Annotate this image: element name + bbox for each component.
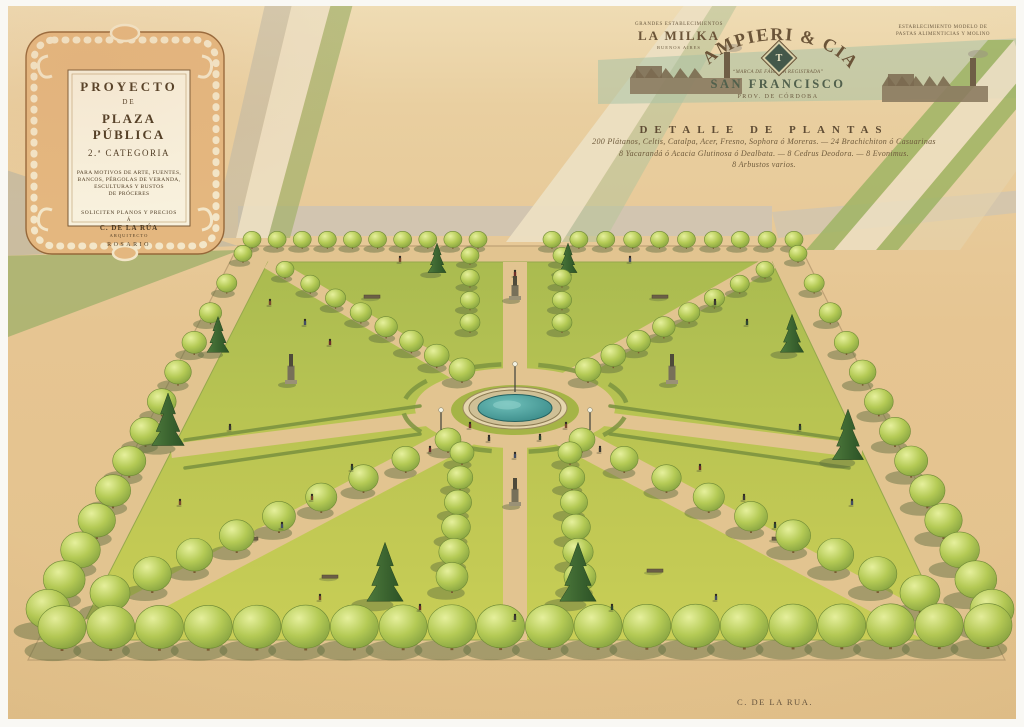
tree-crown <box>375 317 398 337</box>
lamp-globe <box>588 408 593 413</box>
person-body <box>419 606 421 610</box>
person-head <box>746 319 748 321</box>
tree-crown <box>436 562 468 591</box>
person-body <box>514 272 516 276</box>
tree-crown <box>234 245 252 261</box>
tree-crown <box>293 231 311 247</box>
body-line: DE PRÓCERES <box>77 191 181 198</box>
tree-crown <box>165 360 192 384</box>
tree-crown <box>570 231 588 247</box>
photograph-frame: PROYECTO DE PLAZA PÚBLICA 2.ª CATEGORIA … <box>0 0 1024 727</box>
person-body <box>269 301 271 305</box>
person-body <box>799 426 801 430</box>
person-body <box>599 448 601 452</box>
monument-plinth <box>669 366 676 380</box>
bench <box>361 295 380 301</box>
tree-crown <box>756 261 774 277</box>
tree-crown <box>330 605 378 648</box>
bench-seat <box>364 295 380 298</box>
person-body <box>746 321 748 325</box>
tree-crown <box>450 442 474 464</box>
tree-crown <box>268 231 286 247</box>
plant-detail-line: 8 Arbustos varios. <box>520 159 1008 171</box>
person-shadow <box>278 528 283 530</box>
person-shadow <box>316 600 321 602</box>
person-shadow <box>712 600 717 602</box>
tree-crown <box>678 303 699 322</box>
bench-seat <box>647 569 663 572</box>
tree-crown <box>789 245 807 261</box>
tree-crown <box>461 269 480 286</box>
tree-crown <box>834 331 859 353</box>
tree-crown <box>392 446 420 471</box>
bench <box>319 575 338 581</box>
person-head <box>743 494 745 496</box>
monument-statue <box>670 354 674 366</box>
tree-crown <box>469 231 487 247</box>
tree-crown <box>880 417 911 445</box>
person-shadow <box>348 470 353 472</box>
tree-crown <box>558 442 582 464</box>
tree-crown <box>867 604 915 647</box>
person-body <box>514 454 516 458</box>
tree-crown <box>394 231 412 247</box>
tree-crown <box>818 604 866 647</box>
cartouche-body: PARA MOTIVOS DE ARTE, FUENTES, BANCOS, P… <box>77 170 181 198</box>
person-body <box>329 341 331 345</box>
tree-crown <box>325 289 345 307</box>
tree-crown <box>776 520 811 551</box>
person-shadow <box>176 505 181 507</box>
cartouche-footer: SOLICITEN PLANOS Y PRECIOS Á C. DE LA RÚ… <box>81 210 177 249</box>
person-head <box>329 339 331 341</box>
person-head <box>229 424 231 426</box>
lamp-globe <box>439 408 444 413</box>
tree-crown <box>785 231 803 247</box>
person-shadow <box>743 325 748 327</box>
person-shadow <box>426 452 431 454</box>
bench <box>649 295 668 301</box>
person-body <box>319 596 321 600</box>
person-shadow <box>740 500 745 502</box>
person-shadow <box>711 305 716 307</box>
bench-seat <box>322 575 338 578</box>
person-head <box>774 522 776 524</box>
tree-crown <box>859 557 897 591</box>
bench <box>644 569 663 575</box>
tree-crown <box>730 275 749 292</box>
person-shadow <box>416 610 421 612</box>
person-head <box>351 464 353 466</box>
person-body <box>514 616 516 620</box>
person-head <box>419 604 421 606</box>
cartouche-text: PROYECTO DE PLAZA PÚBLICA 2.ª CATEGORIA … <box>68 70 190 226</box>
person-body <box>699 466 701 470</box>
person-head <box>319 594 321 596</box>
monument-base <box>666 380 678 384</box>
person-body <box>469 424 471 428</box>
person-shadow <box>511 458 516 460</box>
person-shadow <box>536 440 541 442</box>
body-line: PARA MOTIVOS DE ARTE, FUENTES, <box>77 170 181 177</box>
tree-crown <box>559 466 585 489</box>
project-title: PROYECTO <box>80 79 177 95</box>
lamp-globe <box>513 362 518 367</box>
tree-crown <box>301 275 320 292</box>
monument-base <box>509 502 521 506</box>
footer-a: Á <box>81 217 177 224</box>
person-head <box>311 494 313 496</box>
tree-crown <box>449 358 475 381</box>
tree-crown <box>624 231 642 247</box>
tree-crown <box>369 231 387 247</box>
body-line: ESCULTURAS Y BUSTOS <box>77 184 181 191</box>
person-body <box>629 258 631 262</box>
tree-crown <box>601 344 626 366</box>
tree-crown <box>731 231 749 247</box>
tree-crown <box>769 604 817 647</box>
monument-base <box>285 380 297 384</box>
tree-crown <box>672 604 720 647</box>
tree-crown <box>623 604 671 647</box>
plant-detail: DETALLE DE PLANTAS 200 Plátanos, Celtis,… <box>520 124 1008 171</box>
tree-crown <box>735 501 768 531</box>
tree-crown <box>447 466 473 489</box>
person-body <box>229 426 231 430</box>
letterhead: GRANDES ESTABLECIMIENTOS LA MILKA BUENOS… <box>600 14 1016 134</box>
tree-crown <box>562 514 591 540</box>
water-highlight <box>493 401 521 410</box>
person-head <box>599 446 601 448</box>
tree-crown <box>444 231 462 247</box>
tree-crown <box>964 604 1012 647</box>
person-body <box>715 596 717 600</box>
architect-role: ARQUITECTO <box>81 232 177 239</box>
tree-crown <box>460 291 479 308</box>
monument-plinth <box>288 366 295 380</box>
person-shadow <box>326 345 331 347</box>
tree-crown <box>419 231 437 247</box>
tree-crown <box>135 605 183 648</box>
tree-crown <box>574 604 622 647</box>
person-body <box>774 524 776 528</box>
plant-detail-line: 200 Plátanos, Celtis, Catalpa, Acer, Fre… <box>520 136 1008 148</box>
tree-crown <box>95 475 130 507</box>
person-head <box>514 614 516 616</box>
tree-crown <box>804 274 824 292</box>
person-head <box>611 604 613 606</box>
tree-crown <box>651 231 669 247</box>
tree-crown <box>817 538 854 571</box>
letterhead-right: ESTABLECIMIENTO MODELO DE PASTAS ALIMENT… <box>868 24 1016 38</box>
tree-crown <box>460 314 480 332</box>
person-head <box>399 256 401 258</box>
person-head <box>714 299 716 301</box>
person-head <box>539 434 541 436</box>
tree-crown <box>442 514 471 540</box>
person-head <box>514 452 516 454</box>
tree-crown <box>276 261 294 277</box>
monument-plinth <box>512 285 519 296</box>
person-shadow <box>626 262 631 264</box>
monument-statue <box>513 478 517 490</box>
person-body <box>281 524 283 528</box>
right-establishment-line2: PASTAS ALIMENTICIAS Y MOLINO <box>868 31 1016 38</box>
tree-crown <box>343 231 361 247</box>
tree-crown <box>575 358 601 381</box>
plant-detail-title: DETALLE DE PLANTAS <box>520 124 1008 136</box>
person-head <box>629 256 631 258</box>
monument-plinth <box>512 489 519 502</box>
tree-crown <box>597 231 615 247</box>
letterhead-center: T TAMPIERI & CIA. “MARCA DE FÁBRICA REGI… <box>698 16 858 100</box>
tree-crown <box>477 605 525 648</box>
tree-crown <box>87 605 135 648</box>
tree-crown <box>704 231 722 247</box>
architect-signature: C. DE LA RUA. <box>690 697 860 707</box>
person-shadow <box>608 610 613 612</box>
tree-crown <box>910 475 945 507</box>
person-shadow <box>771 528 776 530</box>
person-head <box>281 522 283 524</box>
person-head <box>851 499 853 501</box>
tree-crown <box>627 330 651 351</box>
person-head <box>269 299 271 301</box>
monogram-letter: T <box>769 48 789 68</box>
person-shadow <box>301 325 306 327</box>
monument-base <box>509 296 521 300</box>
tree-crown <box>439 538 469 565</box>
tree-crown <box>444 490 471 514</box>
tree-crown <box>38 606 86 649</box>
tree-crown <box>263 501 296 531</box>
tree-crown <box>350 303 371 322</box>
person-shadow <box>396 262 401 264</box>
project-title-de: DE <box>122 98 135 106</box>
tree-crown <box>895 446 928 476</box>
tree-crown <box>864 389 893 415</box>
tree-crown <box>915 604 963 647</box>
tree-crown <box>653 317 676 337</box>
person-head <box>799 424 801 426</box>
architect-city: ROSARIO <box>81 242 177 249</box>
tree-crown <box>233 605 281 648</box>
tree-crown <box>400 330 424 351</box>
tree-crown <box>318 231 336 247</box>
cartouche: PROYECTO DE PLAZA PÚBLICA 2.ª CATEGORIA … <box>20 12 230 262</box>
company-city: SAN FRANCISCO <box>698 77 858 92</box>
person-body <box>539 436 541 440</box>
person-body <box>565 424 567 428</box>
architect-name: C. DE LA RÚA <box>81 225 177 232</box>
tree-crown <box>552 291 571 308</box>
person-head <box>429 446 431 448</box>
tree-crown <box>610 446 638 471</box>
project-category: 2.ª CATEGORIA <box>88 148 170 158</box>
person-body <box>399 258 401 262</box>
tree-crown <box>693 483 724 511</box>
person-shadow <box>696 470 701 472</box>
tree-crown <box>677 231 695 247</box>
person-body <box>611 606 613 610</box>
tree-crown <box>282 605 330 648</box>
person-body <box>488 437 490 441</box>
tree-crown <box>219 520 254 551</box>
tree-crown <box>849 360 876 384</box>
person-head <box>565 422 567 424</box>
person-body <box>714 301 716 305</box>
person-body <box>351 466 353 470</box>
tree-crown <box>819 303 841 323</box>
body-line: BANCOS, PÉRGOLAS DE VERANDA, <box>77 177 181 184</box>
person-head <box>488 435 490 437</box>
tree-crown <box>306 483 337 511</box>
tree-crown <box>176 538 213 571</box>
person-head <box>179 499 181 501</box>
tree-crown <box>113 446 146 476</box>
person-head <box>304 319 306 321</box>
tree-crown <box>182 331 207 353</box>
person-head <box>699 464 701 466</box>
bench-seat <box>652 295 668 298</box>
plant-detail-line: 8 Yacarandá ó Acacia Glutinosa ó Dealbat… <box>520 148 1008 160</box>
person-head <box>469 422 471 424</box>
project-subject: PLAZA PÚBLICA <box>68 111 190 143</box>
person-body <box>311 496 313 500</box>
company-province: PROV. DE CÓRDOBA <box>698 94 858 100</box>
person-shadow <box>596 452 601 454</box>
person-shadow <box>308 500 313 502</box>
person-body <box>429 448 431 452</box>
person-shadow <box>796 430 801 432</box>
person-shadow <box>226 430 231 432</box>
person-body <box>851 501 853 505</box>
street-band <box>238 206 772 236</box>
tree-crown <box>758 231 776 247</box>
person-shadow <box>485 441 490 443</box>
tree-crown <box>461 247 479 263</box>
tree-crown <box>133 557 171 591</box>
tree-crown <box>428 605 476 648</box>
tree-crown <box>525 605 573 648</box>
footer-line: SOLICITEN PLANOS Y PRECIOS <box>81 210 177 217</box>
tree-crown <box>243 231 261 247</box>
poster: PROYECTO DE PLAZA PÚBLICA 2.ª CATEGORIA … <box>8 6 1016 719</box>
tree-crown <box>543 231 561 247</box>
tree-crown <box>424 344 449 366</box>
person-shadow <box>511 620 516 622</box>
person-head <box>514 270 516 272</box>
person-shadow <box>848 505 853 507</box>
tree-crown <box>217 274 237 292</box>
tree-crown <box>184 605 232 648</box>
person-head <box>715 594 717 596</box>
person-body <box>304 321 306 325</box>
person-body <box>179 501 181 505</box>
person-shadow <box>562 428 567 430</box>
person-body <box>743 496 745 500</box>
monument-statue <box>289 354 293 366</box>
tree-crown <box>560 490 587 514</box>
tree-crown <box>553 269 572 286</box>
person-shadow <box>511 276 516 278</box>
right-establishment-line1: ESTABLECIMIENTO MODELO DE <box>868 24 1016 31</box>
person-shadow <box>466 428 471 430</box>
tree-crown <box>552 314 572 332</box>
tree-crown <box>652 465 682 492</box>
tree-crown <box>720 604 768 647</box>
person-shadow <box>266 305 271 307</box>
